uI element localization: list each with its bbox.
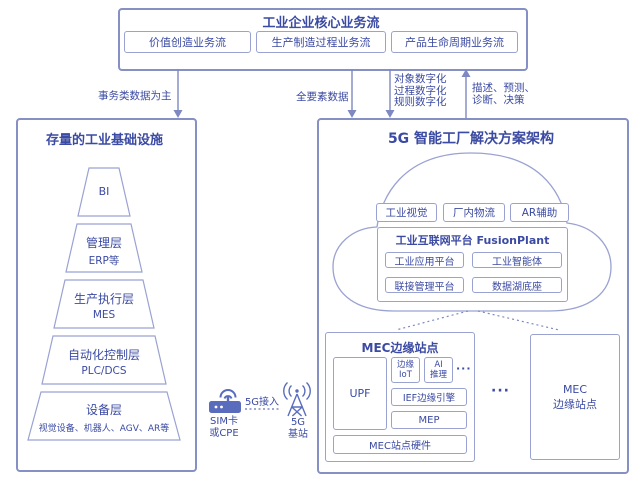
mec-ief-box: IEF边缘引擎 bbox=[391, 388, 467, 406]
base-station-label: 5G 基站 bbox=[282, 417, 314, 441]
mec-sites-ellipsis: ··· bbox=[491, 383, 510, 399]
mec-right-line2: 边缘站点 bbox=[553, 397, 597, 412]
mec-mep-box: MEP bbox=[391, 411, 467, 429]
mec-edge-iot-box: 边缘 IoT bbox=[391, 357, 420, 383]
arrowhead-down-icon bbox=[174, 110, 183, 118]
pyramid-level-plc-name: 自动化控制层 bbox=[19, 346, 189, 363]
label-feedback-line1: 描述、预测、 bbox=[472, 82, 535, 94]
mec-upf-box: UPF bbox=[333, 357, 387, 430]
mec-hardware-box: MEC站点硬件 bbox=[333, 435, 467, 454]
core-flow-title: 工业企业核心业务流 bbox=[118, 12, 524, 31]
arrowhead-down-icon bbox=[386, 110, 395, 118]
module-industrial-intelligence: 工业智能体 bbox=[472, 252, 562, 268]
label-digitization-line3: 规则数字化 bbox=[394, 97, 447, 109]
mec-edge-site-title: MEC边缘站点 bbox=[325, 339, 475, 356]
fusionplant-title: 工业互联网平台 FusionPlant bbox=[377, 232, 568, 248]
mec-edge-iot-line2: IoT bbox=[397, 370, 414, 380]
pyramid-level-bi-label: BI bbox=[19, 185, 189, 198]
cpe-label-line2: 或CPE bbox=[200, 428, 248, 440]
label-feedback: 描述、预测、 诊断、决策 bbox=[472, 82, 535, 106]
cpe-label-line1: SIM卡 bbox=[200, 416, 248, 428]
legacy-panel-title: 存量的工业基础设施 bbox=[16, 129, 193, 148]
flow-item-product-lifecycle: 产品生命周期业务流 bbox=[391, 31, 518, 53]
mec-edge-site-right-box: MEC 边缘站点 bbox=[530, 334, 620, 460]
module-industrial-app-platform: 工业应用平台 bbox=[385, 252, 464, 268]
pyramid-level-device-detail: 视觉设备、机器人、AGV、AR等 bbox=[19, 421, 189, 434]
access-link-label: 5G接入 bbox=[243, 393, 281, 408]
mec-more-dots: ··· bbox=[456, 362, 472, 375]
label-transactional-data: 事务类数据为主 bbox=[98, 88, 172, 103]
module-connection-management: 联接管理平台 bbox=[385, 277, 464, 293]
base-station-icon bbox=[284, 383, 311, 417]
label-digitization-line1: 对象数字化 bbox=[394, 74, 447, 86]
flow-item-value-creation: 价值创造业务流 bbox=[124, 31, 251, 53]
label-feedback-line2: 诊断、决策 bbox=[472, 94, 535, 106]
diagram-canvas: 工业企业核心业务流 价值创造业务流 生产制造过程业务流 产品生命周期业务流 事务… bbox=[0, 0, 630, 477]
pyramid-level-mes-detail: MES bbox=[19, 309, 189, 321]
base-station-label-line2: 基站 bbox=[282, 429, 314, 441]
pyramid-level-plc-detail: PLC/DCS bbox=[19, 365, 189, 377]
mec-ai-line1: AI bbox=[430, 360, 447, 370]
solution-panel-title: 5G 智能工厂解决方案架构 bbox=[317, 128, 625, 148]
pyramid-level-erp-label: 管理层 ERP等 bbox=[19, 234, 189, 268]
edge-dotted-link-left bbox=[396, 311, 468, 330]
label-digitization: 对象数字化 过程数字化 规则数字化 bbox=[394, 74, 447, 109]
pyramid-level-erp-detail: ERP等 bbox=[19, 253, 189, 268]
cloud-app-factory-logistics: 厂内物流 bbox=[443, 203, 505, 222]
base-station-label-line1: 5G bbox=[282, 417, 314, 429]
cloud-to-edge-links bbox=[396, 311, 559, 330]
pyramid-level-device-label: 设备层 视觉设备、机器人、AGV、AR等 bbox=[19, 401, 189, 434]
pyramid-level-mes-label: 生产执行层 MES bbox=[19, 290, 189, 321]
pyramid-level-device-name: 设备层 bbox=[19, 401, 189, 418]
mec-ai-inference-box: AI 推理 bbox=[424, 357, 453, 383]
pyramid-level-mes-name: 生产执行层 bbox=[19, 290, 189, 307]
module-data-lake-base: 数据湖底座 bbox=[472, 277, 562, 293]
pyramid-level-plc-label: 自动化控制层 PLC/DCS bbox=[19, 346, 189, 377]
cloud-app-industrial-vision: 工业视觉 bbox=[376, 203, 437, 222]
flow-item-manufacturing-process: 生产制造过程业务流 bbox=[256, 31, 386, 53]
mec-right-line1: MEC bbox=[553, 382, 597, 397]
pyramid-level-erp-name: 管理层 bbox=[19, 234, 189, 251]
label-all-factor-data: 全要素数据 bbox=[296, 89, 349, 104]
cpe-label: SIM卡 或CPE bbox=[200, 416, 248, 440]
mec-edge-iot-line1: 边缘 bbox=[397, 360, 414, 370]
arrowhead-up-icon bbox=[462, 69, 471, 77]
cpe-router-icon bbox=[209, 390, 241, 413]
arrowhead-down-icon bbox=[348, 110, 357, 118]
edge-dotted-link-right bbox=[478, 311, 559, 330]
mec-ai-line2: 推理 bbox=[430, 370, 447, 380]
cloud-app-ar-assist: AR辅助 bbox=[510, 203, 569, 222]
